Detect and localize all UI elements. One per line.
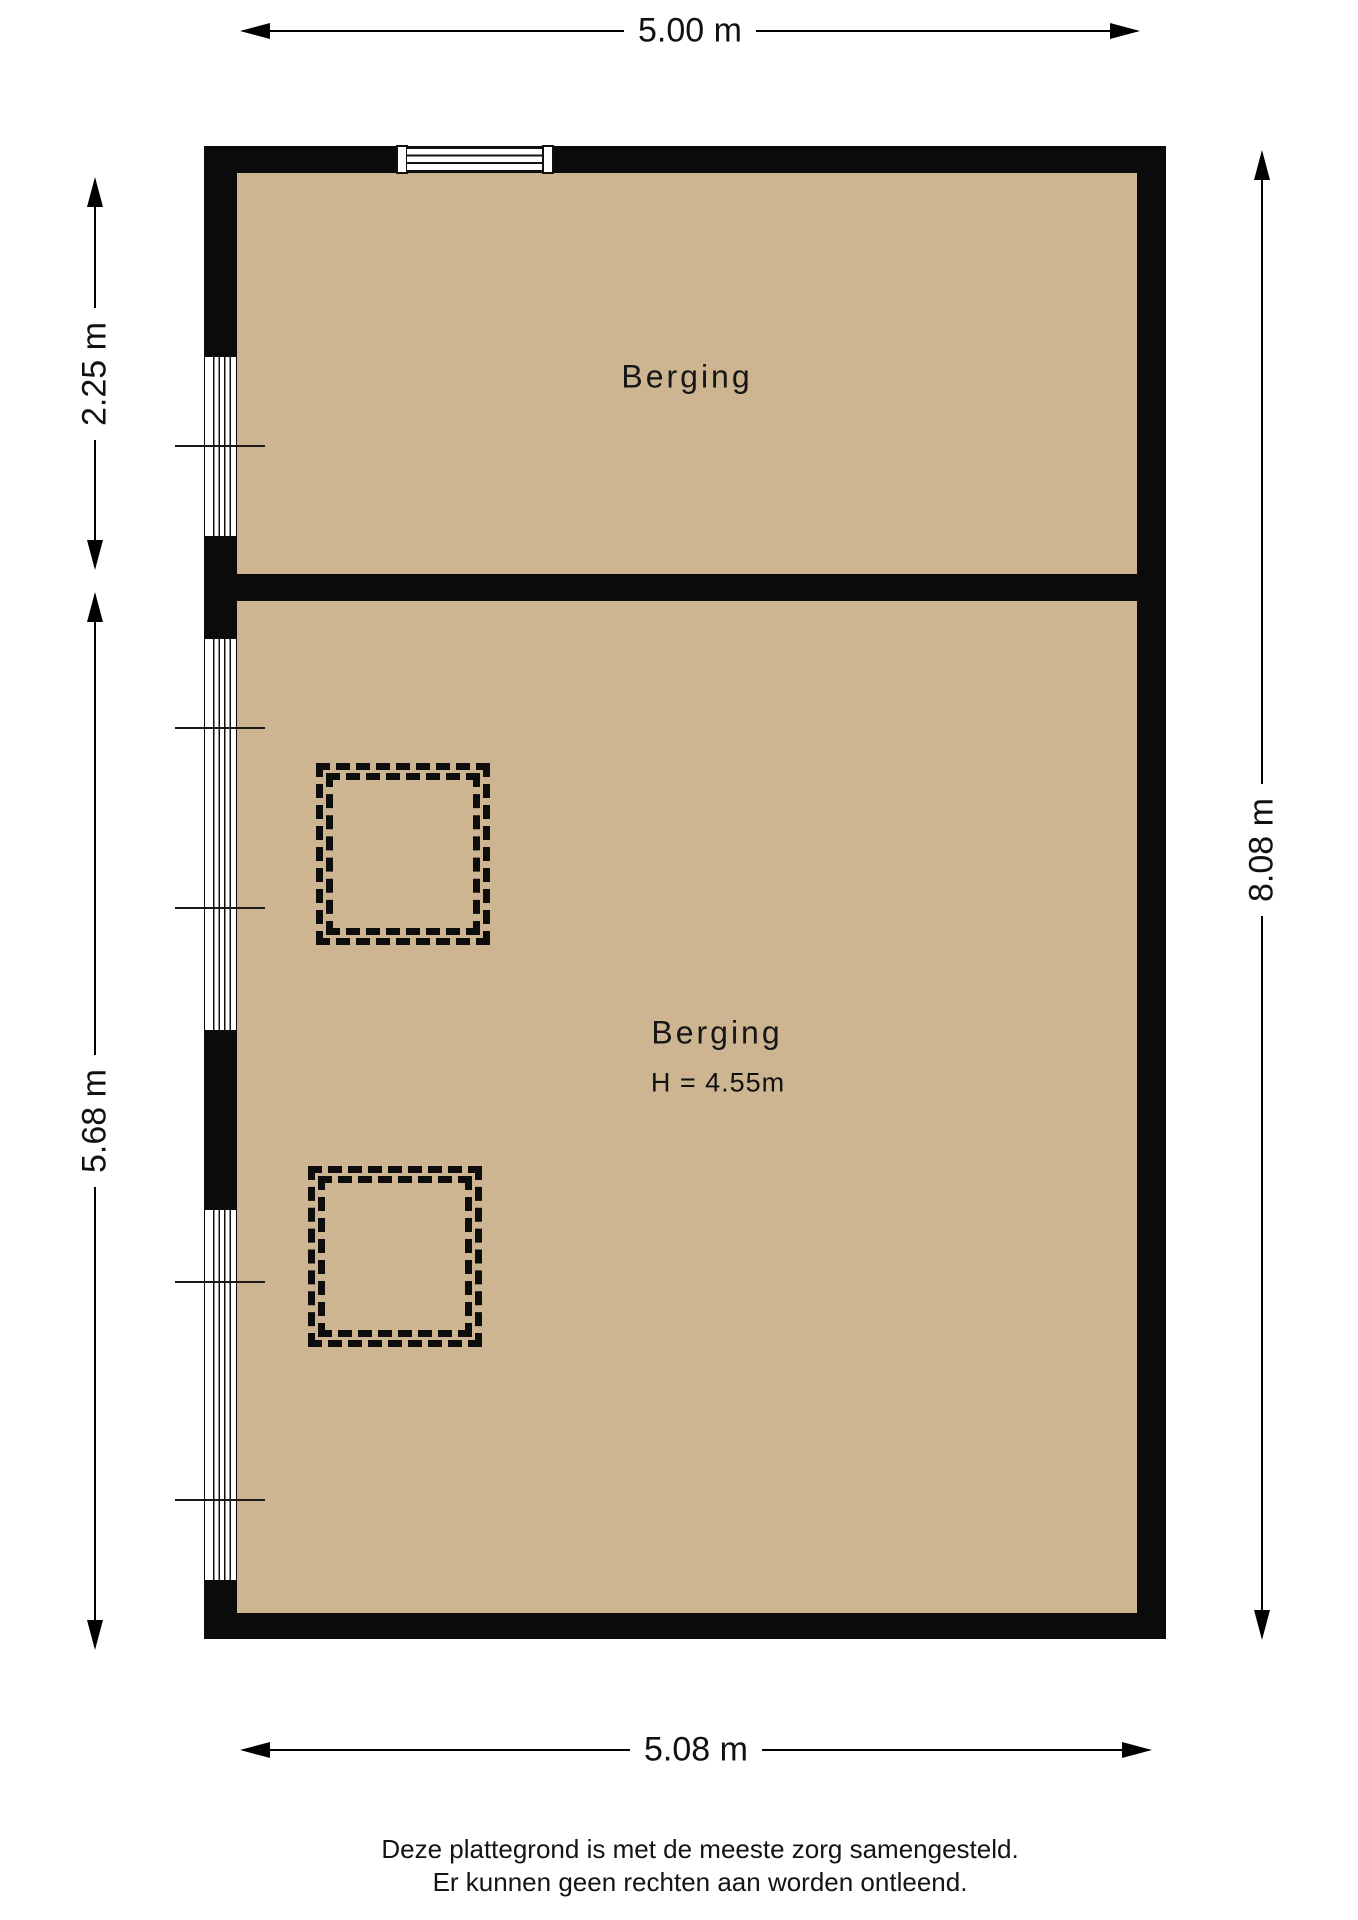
arrowhead-down-icon: [87, 540, 103, 570]
window-tick: [175, 1281, 265, 1283]
dimension-right: 8.08 m: [1247, 150, 1277, 1640]
room-height-label: H = 4.55m: [651, 1068, 785, 1099]
dimension-left-lower: 5.68 m: [80, 592, 110, 1650]
arrowhead-down-icon: [1254, 1610, 1270, 1640]
floorplan-canvas: 5.00 m 5.08 m 2.25 m 5.68 m 8.08 m Bergi…: [0, 0, 1358, 1920]
dimension-label-right: 8.08 m: [1243, 784, 1282, 916]
dimension-label-bottom: 5.08 m: [630, 1731, 762, 1770]
dimension-label-top: 5.00 m: [624, 12, 756, 51]
left-window-lower: [205, 1210, 236, 1580]
disclaimer-line-2: Er kunnen geen rechten aan worden ontlee…: [381, 1866, 1018, 1899]
window-tick: [175, 907, 265, 909]
top-window: [407, 147, 543, 172]
dimension-left-upper: 2.25 m: [80, 177, 110, 570]
window-tick: [175, 727, 265, 729]
window-tick: [175, 1499, 265, 1501]
roof-opening-lower-inner: [318, 1176, 472, 1337]
room-label-berging-upper: Berging: [621, 359, 752, 396]
arrowhead-left-icon: [240, 23, 270, 39]
dimension-label-left-lower: 5.68 m: [76, 1055, 115, 1187]
arrowhead-down-icon: [87, 1620, 103, 1650]
arrowhead-right-icon: [1122, 1742, 1152, 1758]
arrowhead-up-icon: [87, 592, 103, 622]
room-label-berging-lower: Berging: [651, 1015, 782, 1052]
roof-opening-lower: [308, 1166, 482, 1347]
dimension-top: 5.00 m: [240, 16, 1140, 46]
disclaimer-line-1: Deze plattegrond is met de meeste zorg s…: [381, 1833, 1018, 1866]
left-window-middle: [205, 639, 236, 1030]
arrowhead-left-icon: [240, 1742, 270, 1758]
disclaimer-text: Deze plattegrond is met de meeste zorg s…: [381, 1833, 1018, 1899]
arrowhead-right-icon: [1110, 23, 1140, 39]
arrowhead-up-icon: [1254, 150, 1270, 180]
dimension-label-left-upper: 2.25 m: [76, 308, 115, 440]
roof-opening-upper: [316, 763, 490, 945]
window-glass-lines: [213, 1210, 231, 1580]
window-tick: [175, 445, 265, 447]
top-window-cap-right: [542, 145, 554, 174]
room-berging-lower-floor: [237, 601, 1137, 1613]
arrowhead-up-icon: [87, 177, 103, 207]
window-glass-lines: [213, 639, 231, 1030]
roof-opening-upper-inner: [326, 773, 480, 935]
dimension-bottom: 5.08 m: [240, 1735, 1152, 1765]
